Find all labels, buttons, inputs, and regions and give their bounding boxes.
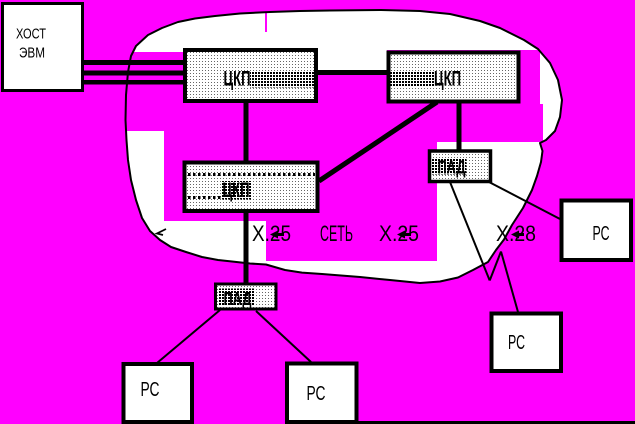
svg-text:ЦКП: ЦКП xyxy=(434,68,461,91)
svg-text:СЕТЬ: СЕТЬ xyxy=(320,221,353,246)
svg-text:ЭВМ: ЭВМ xyxy=(19,45,45,62)
svg-text:ХОСТ: ХОСТ xyxy=(16,26,46,43)
svg-text:РС: РС xyxy=(141,379,160,401)
svg-text:ПАД: ПАД xyxy=(224,289,252,309)
svg-text:ПАД: ПАД xyxy=(438,158,466,178)
svg-text:РС: РС xyxy=(508,332,525,354)
svg-text:РС: РС xyxy=(307,383,326,405)
svg-text:РС: РС xyxy=(593,223,610,245)
svg-text:Х.25: Х.25 xyxy=(252,221,291,246)
svg-text:ЦКП: ЦКП xyxy=(224,68,251,91)
svg-text:ЦКП: ЦКП xyxy=(223,179,250,202)
